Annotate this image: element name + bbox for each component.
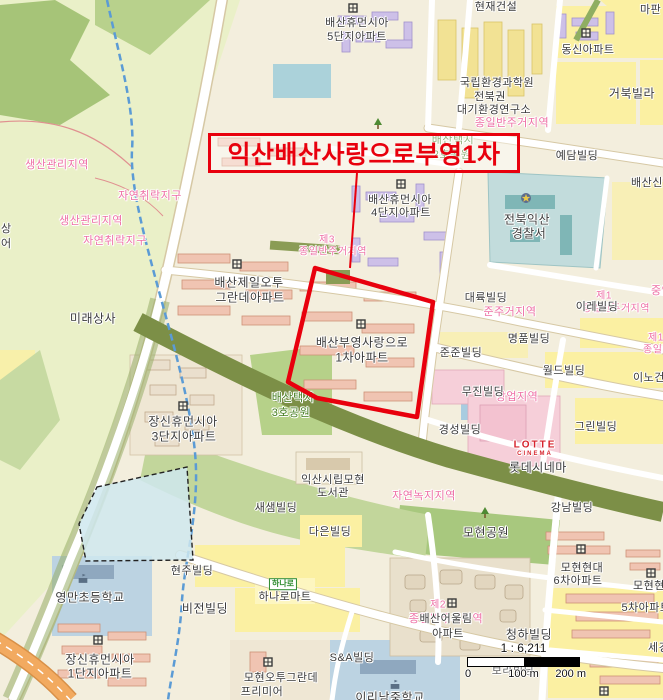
map-label: 생산관리지역 (59, 212, 123, 228)
map-label: 준준빌딩 (440, 344, 482, 360)
map-label: 무진빌딩 (462, 383, 504, 399)
apartment-icon (396, 179, 407, 190)
map-label: 자연취락지구 (83, 232, 147, 248)
scale-bar-segment-black (524, 658, 580, 666)
apartment-icon (93, 635, 104, 646)
apartment-icon (447, 598, 458, 609)
map-label: 영만초등학교 (55, 589, 124, 606)
map-label: 경찰서 (512, 225, 547, 242)
apartment-icon (581, 28, 592, 39)
scale-ticks: 0 100 m 200 m (467, 668, 580, 682)
map-label: 제2 (430, 596, 446, 611)
map-label: 모현현대 (633, 577, 663, 593)
scale-tick-200: 200 m (555, 668, 586, 680)
apartment-icon (599, 686, 610, 697)
map-label: 종일반주거지역 (299, 243, 367, 258)
map-label: 어 (1, 235, 12, 251)
map-label: 상 (1, 220, 12, 236)
map-label: 이레빌딩 (576, 298, 618, 314)
map-label: 하나로마트 (258, 588, 311, 604)
map-label: 6차아파트 (553, 572, 602, 588)
map-label: 종일반주거 (643, 341, 663, 356)
map-label: 생산관리지역 (25, 156, 89, 172)
map-label: 비전빌딩 (182, 600, 228, 617)
map-label: 동신아파트 (561, 41, 614, 57)
scale-ratio: 1 : 6,211 (467, 641, 580, 655)
map-label: 강남빌딩 (551, 499, 593, 515)
map-label: 1차아파트 (335, 349, 388, 366)
map-label: 새샘빌딩 (255, 499, 297, 515)
map-label: 경성빌딩 (439, 421, 481, 437)
scale-tick-0: 0 (465, 668, 471, 680)
map-label: 배산어울림 (419, 610, 472, 626)
map-label: 자연녹지지역 (392, 487, 456, 503)
map-label: 명품빌딩 (508, 330, 550, 346)
map-canvas[interactable]: 현재건설마판배산휴먼시아5단지아파트동신아파트국립환경과학원전북권대기환경연구소… (0, 0, 663, 700)
map-label: S&A빌딩 (330, 649, 375, 665)
map-label: 미래상사 (70, 310, 116, 327)
highlight-label-box: 익산배산사랑으로부영1차 (208, 133, 520, 173)
hanaro-logo-icon: 하나로 (269, 578, 297, 590)
school-icon (77, 572, 90, 585)
map-label: 모현공원 (463, 524, 509, 541)
scale-bar-segment-white (468, 658, 524, 666)
map-label: 3호공원 (272, 404, 310, 420)
apartment-icon (263, 657, 274, 668)
map-label: 다은빌딩 (309, 523, 351, 539)
scale-bar-graphic (467, 657, 580, 667)
apartment-icon (348, 3, 359, 14)
apartment-icon (646, 568, 657, 579)
apartment-icon (576, 544, 587, 555)
map-label: 그란데아파트 (215, 289, 284, 306)
map-label: 롯데시네마 (509, 459, 567, 476)
map-label: 마판 (640, 1, 661, 17)
map-label: 준주거지역 (483, 303, 536, 319)
map-label: 아파트 (432, 625, 464, 641)
police-icon (520, 192, 533, 205)
school-icon (389, 678, 402, 691)
map-label: 1단지아파트 (68, 665, 133, 682)
map-label: 예담빌딩 (556, 147, 598, 163)
scale-tick-100: 100 m (508, 668, 539, 680)
map-label: LOTTE (514, 440, 557, 451)
scale-bar: 1 : 6,211 0 100 m 200 m (467, 641, 580, 682)
highlight-label: 익산배산사랑으로부영1차 (228, 135, 501, 171)
map-label: 그린빌딩 (575, 418, 617, 434)
map-label: 프리미어 (241, 683, 283, 699)
map-label: 중앙 (651, 282, 663, 298)
map-label: 자연취락지구 (118, 187, 182, 203)
map-label: 4단지아파트 (371, 204, 431, 220)
map-label: 배산신협 (631, 174, 663, 190)
apartment-icon (178, 401, 189, 412)
map-label: 월드빌딩 (543, 362, 585, 378)
apartment-icon (356, 319, 367, 330)
map-label: 현재건설 (475, 0, 517, 14)
apartment-icon (232, 259, 243, 270)
map-label: 현주빌딩 (171, 562, 213, 578)
map-label: 5단지아파트 (327, 28, 387, 44)
map-label: 거북빌라 (609, 85, 655, 102)
map-label: 배산택지 (272, 389, 314, 405)
map-label: 5차아파트 (621, 599, 663, 615)
map-label: 청하빌딩 (506, 626, 552, 643)
map-label: CINEMA (517, 451, 553, 457)
map-label: 3단지아파트 (152, 428, 217, 445)
map-label: 세경 (648, 639, 663, 655)
map-label: 이노건설 (633, 369, 663, 385)
tree-icon (480, 507, 490, 519)
tree-icon (373, 118, 383, 130)
map-label: 종일반주거지역 (475, 114, 549, 130)
map-label: 도서관 (317, 484, 349, 500)
